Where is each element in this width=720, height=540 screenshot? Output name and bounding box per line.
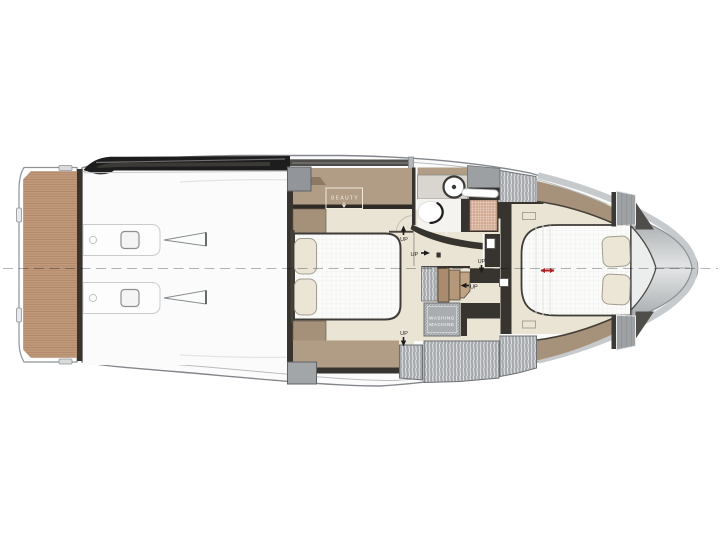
svg-text:UP: UP bbox=[478, 259, 486, 265]
svg-text:UP: UP bbox=[470, 285, 478, 291]
svg-text:UP: UP bbox=[400, 237, 408, 243]
svg-text:MACHINE: MACHINE bbox=[429, 322, 454, 327]
svg-text:BEAUTY: BEAUTY bbox=[331, 196, 359, 202]
svg-text:UP: UP bbox=[411, 252, 419, 258]
svg-text:UP: UP bbox=[400, 331, 408, 337]
svg-text:WASHING: WASHING bbox=[429, 316, 455, 321]
